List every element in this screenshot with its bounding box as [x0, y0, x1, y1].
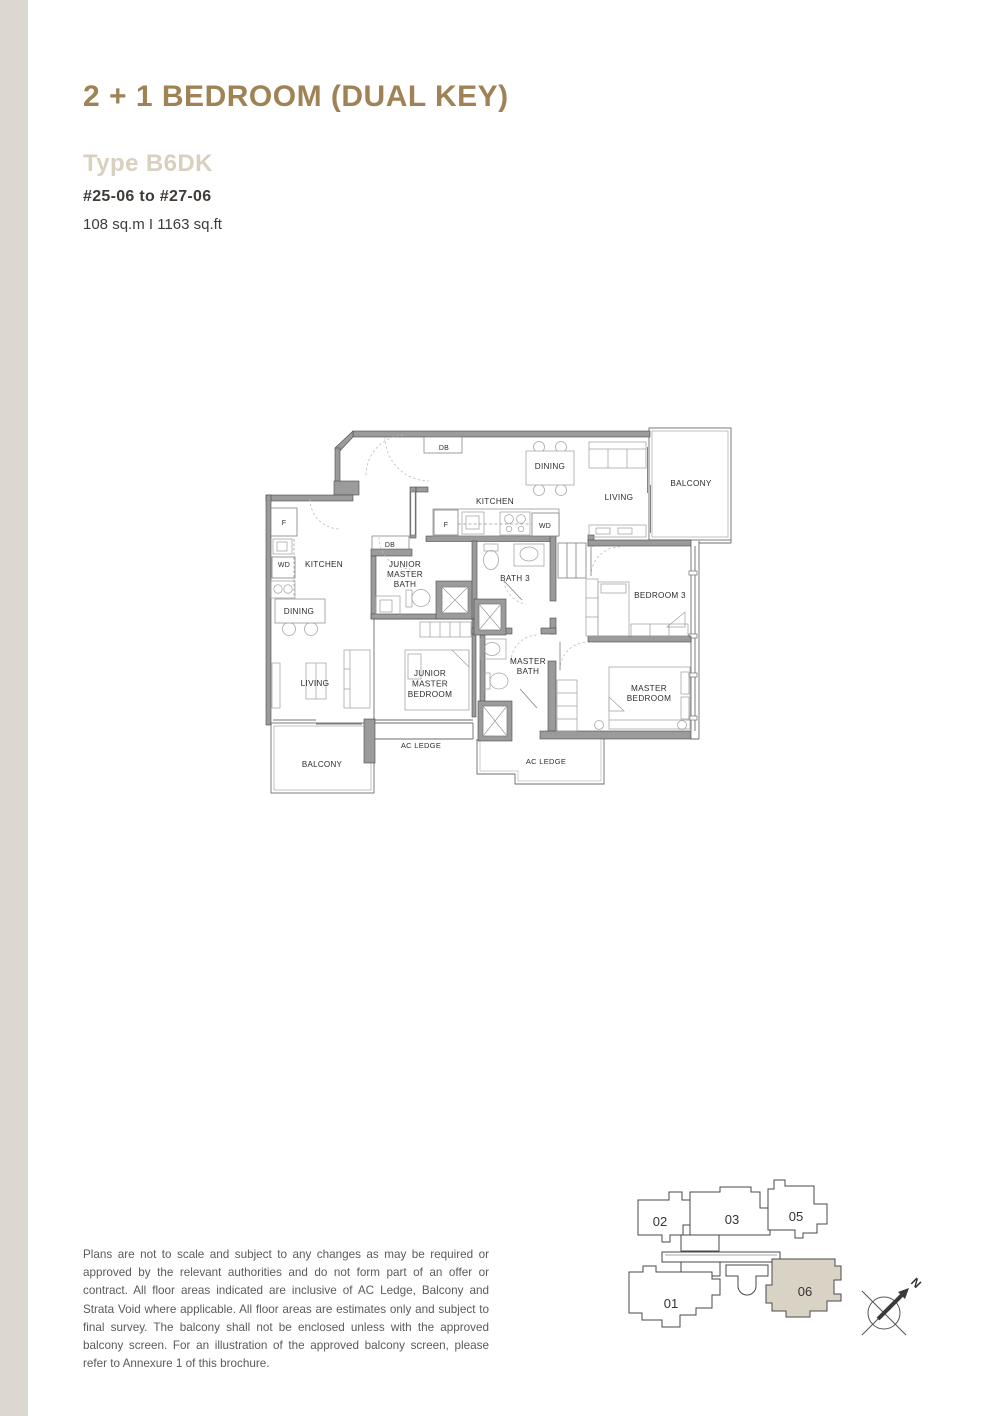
walls — [266, 431, 691, 763]
room-label-master-bath: MASTER — [510, 657, 546, 666]
keyplan-unit-02: 02 — [653, 1214, 667, 1229]
room-label-junior-master-bath: MASTER — [387, 570, 423, 579]
room-label-ac-ledge-left: AC LEDGE — [401, 741, 441, 750]
room-label-kitchen-main: KITCHEN — [476, 497, 514, 506]
room-label-db-mid: DB — [385, 542, 395, 549]
keyplan-unit-03: 03 — [725, 1212, 739, 1227]
room-label-fridge-studio: F — [282, 520, 287, 527]
room-label-living-studio: LIVING — [301, 679, 330, 688]
left-edge-stripe — [0, 0, 28, 1416]
key-plan-drawing: 0203050106N — [622, 1175, 932, 1345]
unit-range: #25-06 to #27-06 — [83, 188, 211, 206]
room-label-balcony-studio: BALCONY — [302, 760, 343, 769]
room-label-master-bedroom: MASTER — [631, 684, 667, 693]
page-title: 2 + 1 BEDROOM (DUAL KEY) — [83, 80, 509, 114]
key-plan: 0203050106N — [622, 1175, 932, 1345]
room-label-wd-studio: WD — [278, 562, 290, 569]
keyplan-outlines — [629, 1180, 841, 1327]
room-label-junior-master-bedroom: BEDROOM — [408, 690, 452, 699]
room-label-junior-master-bedroom: MASTER — [412, 680, 448, 689]
keyplan-unit-01: 01 — [664, 1296, 678, 1311]
room-label-bath-3: BATH 3 — [500, 574, 530, 583]
floor-plan: DBDININGLIVINGBALCONYKITCHENFWDFKITCHENW… — [258, 423, 748, 803]
room-label-wd-main: WD — [539, 523, 551, 530]
door-leaves — [504, 547, 591, 708]
north-arrow-icon — [862, 1288, 909, 1335]
keyplan-unit-05: 05 — [789, 1209, 803, 1224]
room-label-db-entry: DB — [439, 445, 449, 452]
room-label-dining-main: DINING — [535, 462, 565, 471]
room-label-master-bath: BATH — [517, 667, 539, 676]
brochure-page: 2 + 1 BEDROOM (DUAL KEY) Type B6DK #25-0… — [0, 0, 1000, 1416]
disclaimer-text: Plans are not to scale and subject to an… — [83, 1246, 489, 1373]
unit-type-label: Type B6DK — [83, 150, 213, 178]
unit-area: 108 sq.m I 1163 sq.ft — [83, 216, 222, 233]
room-label-junior-master-bath: BATH — [394, 580, 416, 589]
room-label-balcony-main: BALCONY — [670, 479, 711, 488]
room-label-kitchen-studio: KITCHEN — [305, 560, 343, 569]
room-label-junior-master-bedroom: JUNIOR — [414, 669, 446, 678]
room-label-junior-master-bath: JUNIOR — [389, 560, 421, 569]
room-label-living-main: LIVING — [605, 493, 634, 502]
north-label: N — [908, 1275, 924, 1291]
floor-plan-drawing: DBDININGLIVINGBALCONYKITCHENFWDFKITCHENW… — [258, 423, 748, 803]
keyplan-unit-06: 06 — [798, 1284, 812, 1299]
room-label-fridge-main: F — [444, 522, 449, 529]
room-label-ac-ledge-right: AC LEDGE — [526, 757, 566, 766]
room-label-dining-studio: DINING — [284, 607, 314, 616]
room-label-bedroom-3: BEDROOM 3 — [634, 591, 686, 600]
room-label-master-bedroom: BEDROOM — [627, 694, 671, 703]
